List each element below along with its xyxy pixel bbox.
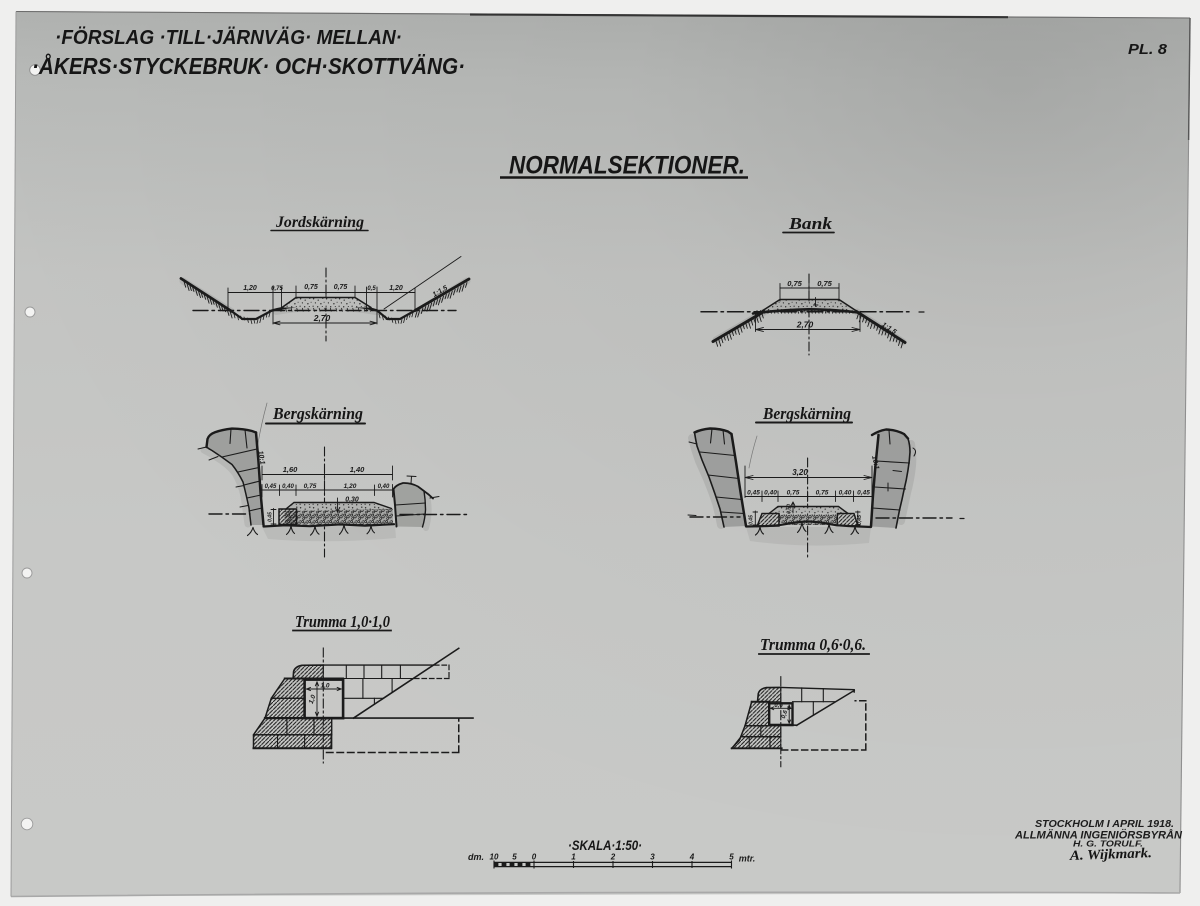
svg-text:5: 5 — [512, 853, 517, 862]
svg-text:3: 3 — [650, 853, 655, 862]
svg-text:1,0: 1,0 — [320, 683, 329, 690]
svg-text:A. Wijkmark.: A. Wijkmark. — [1069, 846, 1153, 864]
svg-text:0,40: 0,40 — [839, 490, 852, 497]
svg-text:0,45: 0,45 — [749, 515, 755, 525]
svg-text:0,75: 0,75 — [817, 279, 832, 288]
svg-text:Trumma 1,0·1,0: Trumma 1,0·1,0 — [295, 612, 390, 631]
svg-text:2,70: 2,70 — [313, 313, 331, 323]
svg-text:STOCKHOLM I APRIL 1918.: STOCKHOLM I APRIL 1918. — [1035, 818, 1174, 830]
svg-text:10: 10 — [490, 853, 499, 862]
svg-text:2,70: 2,70 — [796, 320, 814, 330]
svg-text:0,75: 0,75 — [271, 286, 283, 292]
svg-text:0,45: 0,45 — [265, 484, 277, 490]
svg-text:dm.: dm. — [468, 852, 484, 862]
svg-text:·SKALA·1:50·: ·SKALA·1:50· — [568, 838, 642, 853]
svg-text:5: 5 — [729, 853, 734, 862]
svg-text:mtr.: mtr. — [739, 854, 756, 864]
svg-text:Bank: Bank — [788, 214, 833, 233]
svg-text:0,40: 0,40 — [764, 490, 777, 497]
svg-text:PL. 8: PL. 8 — [1128, 41, 1168, 58]
svg-text:0,75: 0,75 — [334, 284, 348, 291]
svg-text:1,40: 1,40 — [350, 465, 365, 474]
svg-text:0,6: 0,6 — [774, 703, 783, 709]
svg-text:0: 0 — [532, 853, 537, 862]
svg-text:0,75: 0,75 — [816, 490, 829, 497]
svg-text:1: 1 — [571, 853, 576, 862]
svg-text:0,75: 0,75 — [787, 490, 800, 497]
svg-text:0,45: 0,45 — [268, 512, 274, 522]
svg-text:0,45: 0,45 — [857, 515, 863, 525]
svg-text:1,60: 1,60 — [283, 465, 298, 474]
svg-text:0,30: 0,30 — [345, 497, 359, 504]
svg-text:0,75: 0,75 — [787, 279, 802, 288]
svg-text:4: 4 — [689, 853, 695, 862]
svg-text:0,45: 0,45 — [857, 490, 870, 497]
svg-text:Trumma 0,6·0,6.: Trumma 0,6·0,6. — [760, 635, 866, 654]
svg-text:0,75: 0,75 — [304, 284, 318, 291]
svg-text:1,20: 1,20 — [389, 285, 403, 292]
svg-text:3,20: 3,20 — [792, 468, 808, 477]
svg-text:0,50: 0,50 — [787, 504, 793, 514]
svg-text:1,20: 1,20 — [243, 285, 257, 292]
svg-text:Jordskärning: Jordskärning — [275, 214, 364, 231]
svg-text:NORMALSEKTIONER.: NORMALSEKTIONER. — [509, 152, 745, 180]
svg-text:·ÅKERS·STYCKEBRUK· OCH·SKOTTVÄ: ·ÅKERS·STYCKEBRUK· OCH·SKOTTVÄNG· — [32, 53, 465, 79]
svg-text:2: 2 — [610, 853, 616, 862]
svg-text:0,45: 0,45 — [747, 490, 760, 497]
svg-text:Bergskärning: Bergskärning — [762, 404, 851, 423]
svg-text:·FÖRSLAG ·TILL·JÄRNVÄG· MELLAN: ·FÖRSLAG ·TILL·JÄRNVÄG· MELLAN· — [55, 26, 402, 49]
svg-text:0,75: 0,75 — [304, 483, 317, 490]
svg-text:0,40: 0,40 — [282, 484, 294, 490]
svg-text:Bergskärning: Bergskärning — [272, 404, 363, 423]
svg-text:1,20: 1,20 — [344, 483, 357, 490]
svg-text:0,40: 0,40 — [378, 484, 390, 490]
svg-text:0,5: 0,5 — [367, 286, 376, 292]
